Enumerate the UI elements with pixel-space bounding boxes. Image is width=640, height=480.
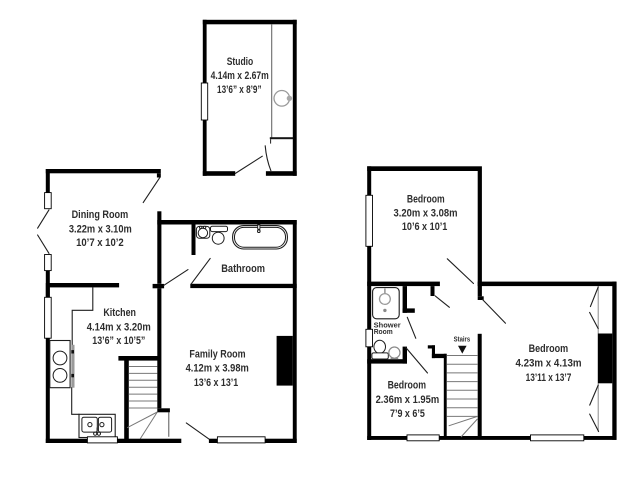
svg-text:4.14m x 2.67m: 4.14m x 2.67m bbox=[211, 70, 269, 82]
svg-text:Bathroom: Bathroom bbox=[221, 263, 265, 275]
svg-text:Family Room: Family Room bbox=[189, 348, 245, 360]
svg-text:10’6 x 10’1: 10’6 x 10’1 bbox=[402, 221, 448, 233]
svg-text:4.14m x 3.20m: 4.14m x 3.20m bbox=[87, 322, 151, 334]
svg-text:Bedroom: Bedroom bbox=[407, 193, 445, 205]
svg-text:7’9 x 6’5: 7’9 x 6’5 bbox=[390, 408, 425, 420]
svg-text:10’7 x 10’2: 10’7 x 10’2 bbox=[76, 237, 124, 249]
svg-text:Stairs: Stairs bbox=[454, 335, 471, 344]
svg-text:3.22m x 3.10m: 3.22m x 3.10m bbox=[69, 223, 132, 235]
svg-text:2.36m x 1.95m: 2.36m x 1.95m bbox=[376, 394, 440, 406]
svg-text:Dining Room: Dining Room bbox=[72, 209, 129, 221]
svg-text:Kitchen: Kitchen bbox=[103, 307, 136, 319]
svg-text:Studio: Studio bbox=[227, 56, 254, 68]
svg-text:4.12m x 3.98m: 4.12m x 3.98m bbox=[186, 363, 249, 375]
svg-text:4.23m x 4.13m: 4.23m x 4.13m bbox=[515, 358, 581, 370]
svg-text:13’6” x 10’5”: 13’6” x 10’5” bbox=[92, 335, 145, 347]
svg-text:Bedroom: Bedroom bbox=[529, 343, 569, 355]
svg-text:Bedroom: Bedroom bbox=[388, 380, 427, 392]
svg-text:Room: Room bbox=[374, 327, 393, 336]
svg-text:13’11 x 13’7: 13’11 x 13’7 bbox=[526, 372, 572, 384]
svg-text:13’6” x 8’9”: 13’6” x 8’9” bbox=[217, 84, 262, 96]
svg-text:13’6 x 13’1: 13’6 x 13’1 bbox=[194, 377, 238, 389]
svg-text:3.20m x 3.08m: 3.20m x 3.08m bbox=[394, 208, 458, 220]
